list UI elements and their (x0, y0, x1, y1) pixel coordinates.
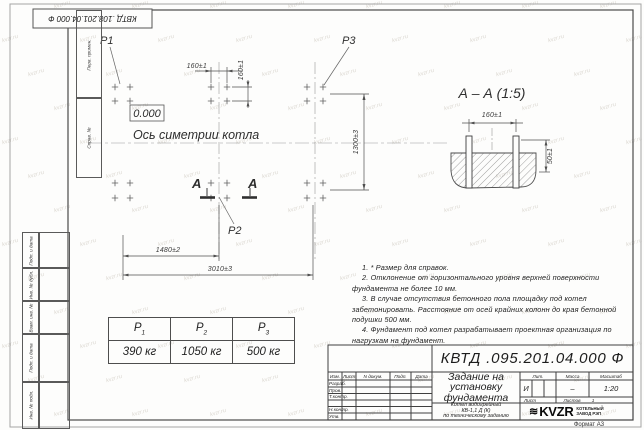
company-name: КОТЕЛЬНЫЙ ЗАВОД РЭП (576, 407, 603, 417)
anchor-bolt-right (513, 136, 519, 188)
bolt-mark (224, 195, 230, 201)
section-view-title: А – А (1:5) (458, 85, 526, 101)
bolt-mark (320, 180, 326, 186)
bolt-mark (304, 180, 310, 186)
dim-160h-text: 160±1 (187, 63, 207, 70)
p3-leader-line (324, 47, 349, 85)
scale-value: 1:20 (589, 380, 633, 397)
bolt-mark (224, 180, 230, 186)
p2-leader-line (219, 197, 234, 224)
bolt-mark (208, 98, 214, 104)
bolt-mark (224, 98, 230, 104)
bolt-mark (208, 84, 214, 90)
margin-box-sprav-n: Справ. № (76, 97, 102, 178)
margin-label: Инв. № подл. (29, 390, 34, 419)
dim-1300 (330, 94, 369, 190)
company-logo-block: ≋ KVZR КОТЕЛЬНЫЙ ЗАВОД РЭП (522, 403, 633, 420)
p1-leader-line (110, 47, 120, 84)
document-title: Задание на установку фундамента (432, 372, 520, 403)
kvzr-logo-icon: ≋ (529, 405, 538, 418)
margin-label: Взам. инв. № (29, 303, 34, 332)
dim-3010-text: 3010±3 (208, 266, 233, 273)
load-point-p1-label: P1 (100, 35, 113, 47)
bolt-mark (208, 180, 214, 186)
margin-label: Подп. и дата (29, 343, 34, 372)
section-view-a-a: А – А (1:5) 160±1 50±1 (451, 85, 554, 188)
lit-value: И (520, 380, 532, 397)
bolt-mark (127, 84, 133, 90)
section-dim-160 (462, 119, 523, 132)
row-utv: Утв. (329, 413, 359, 420)
note-2: 2. Отклонение от горизонтального уровня … (352, 273, 632, 294)
col-data: Дата (411, 372, 432, 380)
dim-1300-text: 1300±3 (353, 130, 360, 155)
bolt-mark (304, 98, 310, 104)
bolt-mark (320, 195, 326, 201)
margin-label: Инв. № дубл. (29, 270, 34, 299)
margin-cell-blank-5 (38, 381, 70, 429)
note-1: 1. * Размер для справок. (352, 263, 632, 273)
dim-160v-text: 160±1 (238, 60, 245, 80)
anchor-bolt-left (466, 136, 472, 188)
load-point-p3-label: P3 (342, 35, 356, 47)
dim-160-vertical (232, 80, 252, 108)
col-izm: Изм. (328, 372, 342, 380)
section-dim-50-text: 50±1 (547, 148, 554, 164)
bolt-mark (127, 98, 133, 104)
bolt-mark (304, 84, 310, 90)
margin-cell-blank-2 (38, 267, 70, 302)
note-4: 4. Фундамент под котел разрабатывает про… (352, 325, 632, 346)
mass-label: Масса (556, 372, 589, 380)
bolt-mark (127, 195, 133, 201)
document-subtitle: Котел водогрейный КВ-1,1 Д (К) по технич… (432, 403, 520, 420)
symmetry-axis-label: Ось симетрии котла (133, 128, 259, 142)
load-header-p3: P3 (233, 318, 295, 341)
load-header-p2: P2 (171, 318, 233, 341)
margin-label: Перв. примен. (87, 39, 92, 70)
format-label: Формат А3 (545, 420, 633, 429)
bolt-mark (320, 98, 326, 104)
col-podp: Подп. (390, 372, 411, 380)
section-cut-marks: А А (191, 176, 257, 198)
load-value-p2: 1050 кг (171, 341, 233, 364)
section-letter-left: А (191, 176, 201, 191)
section-dim-160-text: 160±1 (482, 112, 502, 119)
loads-table-header-row: P1 P2 P3 (109, 318, 295, 341)
bolt-mark (112, 195, 118, 201)
col-list: Лист (342, 372, 356, 380)
margin-cell-blank-4 (38, 333, 70, 383)
elevation-mark: 0.000 (133, 108, 161, 120)
loads-table-value-row: 390 кг 1050 кг 500 кг (109, 341, 295, 364)
drawing-sheet: kvzr.rukvzr.rukvzr.rukvzr.rukvzr.rukvzr.… (0, 0, 644, 430)
scale-label: Масштаб (589, 372, 633, 380)
bolt-mark (112, 84, 118, 90)
section-letter-right: А (247, 176, 257, 191)
bolt-mark (320, 84, 326, 90)
bolt-mark (112, 180, 118, 186)
kvzr-logo-text: KVZR (539, 404, 573, 419)
margin-cell-blank-3 (38, 300, 70, 335)
mass-value: – (556, 380, 589, 397)
load-value-p1: 390 кг (109, 341, 171, 364)
technical-notes: 1. * Размер для справок. 2. Отклонение о… (352, 263, 632, 346)
margin-label: Подп. и дата (29, 236, 34, 265)
loads-table: P1 P2 P3 390 кг 1050 кг 500 кг (108, 317, 295, 364)
concrete-foundation-section (451, 153, 536, 188)
bolt-mark (112, 98, 118, 104)
lit-label: Лит. (520, 372, 556, 380)
dim-1480 (123, 205, 219, 280)
col-n-dokum: N докум. (356, 372, 390, 380)
bolt-mark (127, 180, 133, 186)
dim-1480-text: 1480±2 (156, 247, 181, 254)
margin-box-perv-primen: Перв. примен. (76, 10, 102, 99)
margin-label: Справ. № (87, 127, 92, 148)
load-value-p3: 500 кг (233, 341, 295, 364)
load-header-p1: P1 (109, 318, 171, 341)
note-3: 3. В случае отсутствия бетонного пола пл… (352, 294, 632, 325)
margin-cell-blank-1 (38, 232, 70, 269)
plan-view: P1 P3 P2 0.000 Ось симетрии котла 160±1 (88, 35, 450, 280)
load-point-p2-label: P2 (228, 225, 241, 237)
document-designation: КВТД .095.201.04.000 Ф (432, 345, 633, 372)
bolt-mark (304, 195, 310, 201)
bolt-mark (224, 84, 230, 90)
